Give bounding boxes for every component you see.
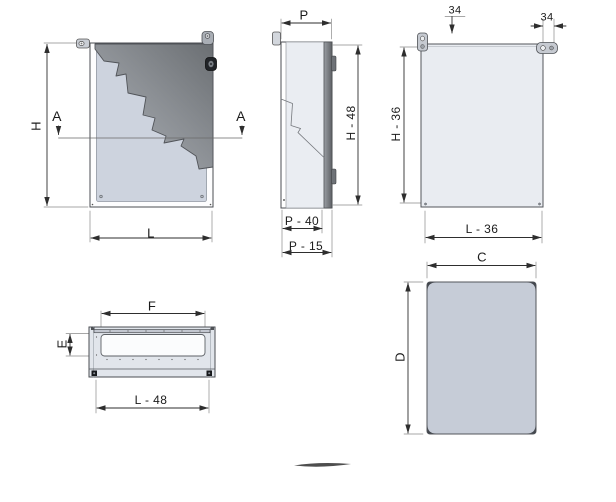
dim-label-L: L <box>147 227 155 240</box>
screw <box>424 203 426 205</box>
mounting-bracket-rear-right <box>537 43 558 54</box>
side-face <box>286 42 324 208</box>
section-label-A-left: A <box>52 109 62 123</box>
door-rear-view <box>404 262 536 434</box>
technical-drawing-canvas: H A A L P H - 48 P - 40 P - 15 34 34 H -… <box>0 0 616 502</box>
lock-icon <box>206 58 217 71</box>
dim-label-H36: H - 36 <box>390 106 402 141</box>
door-panel <box>427 282 536 434</box>
front-view <box>44 32 242 243</box>
dim-label-P: P <box>299 9 308 22</box>
dim-label-P40: P - 40 <box>285 215 319 227</box>
dim-label-F: F <box>148 300 156 313</box>
section-label-A-right: A <box>236 109 246 123</box>
mounting-bracket-top-left <box>77 39 90 48</box>
dim-label-L36: L - 36 <box>466 223 499 235</box>
dim-label-34-left: 34 <box>448 6 461 17</box>
hinge-bottom <box>332 169 337 184</box>
scan-artifact <box>294 463 351 467</box>
dim-label-D: D <box>394 352 407 362</box>
corner-mark <box>210 204 212 206</box>
door-edge <box>324 42 332 208</box>
mounting-bracket-side <box>273 32 281 45</box>
dim-label-H: H <box>30 121 43 131</box>
screw <box>538 203 540 205</box>
corner-mark <box>92 204 94 206</box>
mounting-bracket-top-right <box>202 32 214 45</box>
dim-label-E: E <box>56 339 69 348</box>
mounting-bracket-rear-left <box>418 33 428 51</box>
dim-label-34-right: 34 <box>540 13 553 24</box>
gland-rail <box>94 330 210 333</box>
hinge-top <box>332 56 337 71</box>
dim-label-P15: P - 15 <box>289 240 323 252</box>
gland-cutout <box>101 335 205 357</box>
dim-label-H48: H - 48 <box>345 105 357 140</box>
screw <box>283 199 285 201</box>
dim-label-C: C <box>477 251 487 264</box>
rear-panel <box>421 44 543 207</box>
rear-view <box>400 17 566 244</box>
dim-label-L48: L - 48 <box>135 394 168 406</box>
